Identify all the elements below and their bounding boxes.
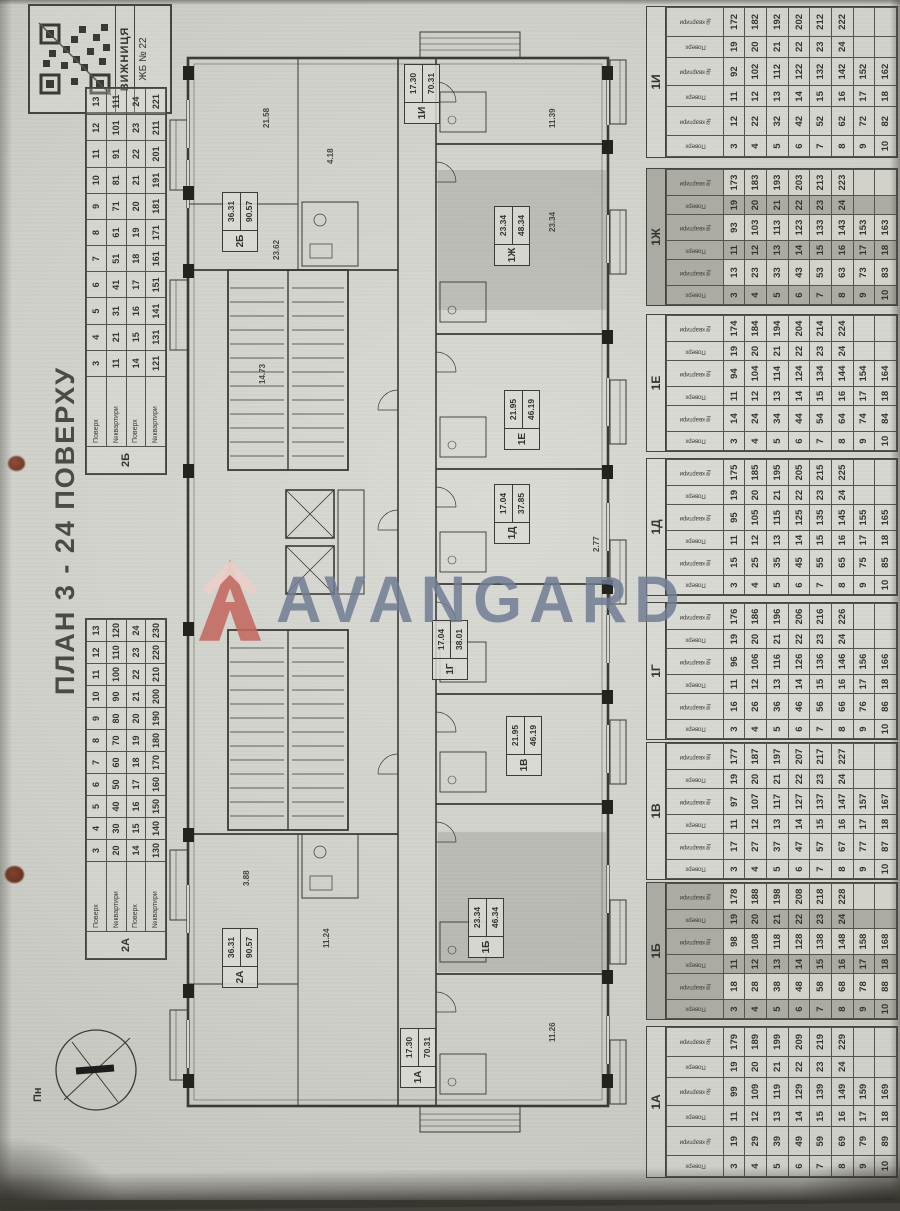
table-row: 4271210720187 [745,744,767,879]
apartment-header: №квартири [146,377,166,447]
unit-id: 1В [507,754,541,775]
table-row: 318119819178 [723,884,745,1019]
apartment-number-cell: 153 [853,215,875,241]
apartment-number-cell [853,604,875,630]
apartment-type-label: 1Б [647,883,666,1019]
apartment-number-cell: 202 [788,8,810,37]
apartment-number-cell: 24 [745,406,767,432]
unit-living-area: 23.34 [469,899,487,936]
apartment-number-cell: 95 [723,505,745,531]
apartment-number-cell: 201 [146,141,166,167]
apartment-number-cell: 203 [788,170,810,196]
apartment-number-cell: 28 [745,974,767,1000]
table-row: 5371311721197 [767,744,789,879]
apartment-number-cell: 148 [832,929,854,955]
floor-number-cell: 24 [832,342,854,361]
floor-number-cell: 9 [853,860,875,879]
apartment-number-cell: 161 [146,246,166,272]
floor-number-cell: 22 [788,630,810,649]
table-row: 97717157 [853,744,875,879]
apartment-number-cell: 102 [745,57,767,86]
stair-core [228,270,348,470]
floor-number-cell: 11 [723,815,745,834]
apartment-number-cell: 17 [723,834,745,860]
apartment-number-cell: 54 [810,406,832,432]
floor-number-cell: 4 [87,818,107,840]
floor-number-cell: 23 [810,1056,832,1077]
apartment-header: №квартири [667,1077,724,1106]
floor-number-cell: 6 [788,432,810,451]
unit-area-label: 1Д17.0437.85 [494,484,530,544]
table-row: 4221210220182 [745,8,767,157]
apartment-number-cell: 103 [745,215,767,241]
floor-number-cell: 12 [745,531,767,550]
dimension-label: 2.77 [592,536,601,552]
floor-number-cell: 16 [126,796,146,818]
apartment-number-cell: 19 [723,1127,745,1156]
apartment-number-cell: 15 [723,550,745,576]
apartment-number-cell: 100 [106,664,126,686]
apartment-number-cell: 175 [723,460,745,486]
apartment-number-cell: 154 [853,361,875,387]
apartment-number-cell: 20 [106,840,126,862]
floor-number-cell: 21 [767,342,789,361]
apartment-number-cell: 197 [767,744,789,770]
apartment-number-cell: 170 [146,752,166,774]
floor-number-cell: 5 [767,286,789,305]
unit-id: 1Д [495,522,529,543]
apartment-number-cell: 137 [810,789,832,815]
floor-header: Поверх [667,1106,724,1127]
floor-number-cell: 17 [853,815,875,834]
floor-number-cell: 23 [810,36,832,57]
apartment-number-cell: 227 [832,744,854,770]
apartment-number-cell: 30 [106,818,126,840]
apartment-number-cell: 101 [106,115,126,141]
floor-number-cell: 6 [788,720,810,739]
floor-number-cell: 17 [853,86,875,107]
table-row: 313119319173 [723,170,745,305]
table-row: 6481412822208 [788,884,810,1019]
floor-number-cell: 14 [788,815,810,834]
floor-number-cell: 5 [767,136,789,157]
dimension-label: 11.26 [548,1022,557,1042]
floor-number-cell: 21 [767,910,789,929]
floor-number-cell: 11 [723,531,745,550]
unit-areas: 36.3190.57 [223,929,257,966]
floor-number-cell: 19 [723,630,745,649]
apartment-number-cell: 192 [767,8,789,37]
floor-number-cell: 20 [745,630,767,649]
apartment-number-cell: 114 [767,361,789,387]
compass-icon [50,1021,145,1116]
floor-number-cell: 4 [745,432,767,451]
floor-number-cell: 23 [810,630,832,649]
table-row: 5351311521195 [767,460,789,595]
apartment-number-cell: 218 [810,884,832,910]
apartment-number-cell: 106 [745,649,767,675]
floor-number-cell: 11 [723,241,745,260]
floor-number-cell: 24 [832,486,854,505]
dimension-label: 11.39 [548,108,557,128]
apartment-number-cell: 155 [853,505,875,531]
apartment-number-cell: 223 [832,170,854,196]
apartment-number-cell: 68 [832,974,854,1000]
floor-number-cell: 23 [810,910,832,929]
unit-id: 2Б [223,230,257,251]
apartment-number-cell: 50 [106,774,126,796]
floor-number-cell: 13 [767,387,789,406]
apartment-number-cell: 73 [853,260,875,286]
unit-living-area: 21.95 [505,391,523,428]
apartment-number-cell: 198 [767,884,789,910]
floor-header: Поверх [667,770,724,789]
apartment-number-cell: 91 [106,141,126,167]
apartment-number-cell: 105 [745,505,767,531]
floor-number-cell: 20 [745,910,767,929]
floor-number-cell: 22 [788,1056,810,1077]
floor-number-cell: 9 [853,432,875,451]
floor-number-cell: 8 [87,730,107,752]
table-row: 97417154 [853,316,875,451]
table-row: 2АПоверх345678910111213 [87,620,107,959]
unit-id: 1А [401,1066,435,1087]
floor-number-cell: 9 [87,708,107,730]
floor-number-cell: 12 [745,955,767,974]
floor-number-cell: 23 [810,196,832,215]
floor-number-cell: 15 [810,955,832,974]
floor-number-cell: 22 [788,36,810,57]
floor-number-cell: 20 [126,193,146,219]
apartment-number-cell: 145 [832,505,854,531]
apartment-number-cell: 67 [832,834,854,860]
floor-number-cell: 8 [832,720,854,739]
table-header-row: Поверх№квартириПоверх№квартириПоверх№ква… [667,1028,724,1177]
floor-number-cell: 7 [810,136,832,157]
floor-number-cell: 14 [788,86,810,107]
floor-header: Поверх [667,910,724,929]
unit-2b-interior [188,58,358,270]
floor-number-cell: 6 [788,286,810,305]
dimension-label: 11.24 [322,928,331,948]
apartment-number-cell: 142 [832,57,854,86]
apartment-number-cell: 12 [723,107,745,136]
floor-header: Поверх [667,286,724,305]
apartment-header: №квартири [146,862,166,932]
floor-number-cell: 20 [745,342,767,361]
unit-area-label: 2А36.3190.57 [222,928,258,988]
floor-number-cell: 22 [788,910,810,929]
apartment-number-cell: 209 [788,1028,810,1057]
apartment-number-cell: 157 [853,789,875,815]
table-row: 6421412222202 [788,8,810,157]
apartment-number-cell: 134 [810,361,832,387]
floor-number-cell: 15 [810,675,832,694]
unit-id: 1Б [469,936,503,957]
table-header-row: Поверх№квартириПоверх№квартириПоверх№ква… [667,8,724,157]
apartment-number-cell: 35 [767,550,789,576]
floor-number-cell: 8 [832,432,854,451]
apartment-number-cell: 174 [723,316,745,342]
apartment-number-cell: 193 [767,170,789,196]
floor-number-cell: 16 [126,298,146,324]
floor-apartment-table: Поверх№квартириПоверх№квартириПоверх№ква… [666,459,897,595]
floor-number-cell: 21 [767,630,789,649]
dimension-label: 14.73 [258,364,267,384]
floor-number-cell: 9 [87,193,107,219]
stair-core [228,630,348,830]
floor-number-cell: 3 [723,1000,745,1019]
floor-header: Поверх [126,377,146,447]
floor-number-cell: 17 [853,675,875,694]
floor-number-cell: 11 [723,675,745,694]
floor-number-cell: 17 [126,774,146,796]
apartment-header: №квартири [667,460,724,486]
apartment-number-cell: 183 [745,170,767,196]
table-row: 4231210320183 [745,170,767,305]
floor-apartment-table: Поверх№квартириПоверх№квартириПоверх№ква… [666,315,897,451]
apartment-number-cell: 151 [146,272,166,298]
table-row: 7541513423214 [810,316,832,451]
floor-number-cell: 10 [87,167,107,193]
apartment-number-cell: 43 [788,260,810,286]
floor-number-cell: 21 [767,770,789,789]
floor-number-cell: 18 [126,246,146,272]
unit-living-area: 17.30 [401,1029,419,1066]
apartment-number-cell: 205 [788,460,810,486]
apartment-number-cell: 116 [767,649,789,675]
unit-areas: 21.9546.19 [505,391,539,428]
unit-total-area: 90.57 [241,193,258,230]
unit-total-area: 90.57 [241,929,258,966]
apartment-number-cell: 225 [832,460,854,486]
floor-number-cell: 9 [853,1000,875,1019]
floor-number-cell: 8 [832,286,854,305]
apartment-number-cell: 44 [788,406,810,432]
apartment-number-cell: 200 [146,686,166,708]
table-row: 6471412722207 [788,744,810,879]
apartment-number-cell: 206 [788,604,810,630]
apartment-number-cell: 182 [745,8,767,37]
floor-number-cell: 15 [810,1106,832,1127]
floor-number-cell: 23 [126,642,146,664]
floor-number-cell: 9 [853,286,875,305]
table-row: 319119919179 [723,1028,745,1177]
floor-number-cell [853,36,875,57]
apartment-header: №квартири [106,862,126,932]
apartment-number-cell: 139 [810,1077,832,1106]
apartment-number-cell: 53 [810,260,832,286]
floor-number-cell: 15 [810,86,832,107]
floor-number-cell: 16 [832,86,854,107]
unit-areas: 23.3448.34 [495,207,529,244]
table-row: 6431412322203 [788,170,810,305]
apartment-number-cell: 107 [745,789,767,815]
floor-number-cell: 11 [723,387,745,406]
unit-area-label: 1В21.9546.19 [506,716,542,776]
unit-total-area: 46.19 [523,391,540,428]
apartment-number-cell: 70 [106,730,126,752]
unit-areas: 21.9546.19 [507,717,541,754]
apartment-type-label: 1Ж [647,169,666,305]
apartment-number-cell: 143 [832,215,854,241]
floor-number-cell: 8 [832,1000,854,1019]
floor-number-cell: 7 [87,246,107,272]
paper-edge-shadow [0,0,900,5]
floor-number-cell: 11 [87,664,107,686]
floor-header: Поверх [87,862,107,932]
watermark-text: AVANGARD [276,562,687,638]
unit-id: 2А [223,966,257,987]
floor-number-cell: 11 [723,1106,745,1127]
unit-living-area: 21.95 [507,717,525,754]
apartment-number-cell: 118 [767,929,789,955]
apartment-number-cell [853,884,875,910]
apartment-type-label: 1Е [647,315,666,451]
floor-number-cell: 17 [126,272,146,298]
unit-area-label: 1И17.3070.31 [404,64,440,124]
floor-number-cell: 16 [832,531,854,550]
table-row: 4251210520185 [745,460,767,595]
apartment-number-cell: 158 [853,929,875,955]
floor-number-cell: 19 [723,196,745,215]
apartment-table-1v: 1ВПоверх№квартириПоверх№квартириПоверх№к… [646,742,898,880]
apartment-number-cell: 72 [853,107,875,136]
floor-number-cell: 13 [87,89,107,115]
floor-apartment-table: Поверх№квартириПоверх№квартириПоверх№ква… [666,743,897,879]
floor-number-cell: 21 [126,167,146,193]
apartment-table-1zh: 1ЖПоверх№квартириПоверх№квартириПоверх№к… [646,168,898,306]
table-row: 315119519175 [723,460,745,595]
floor-number-cell: 4 [745,286,767,305]
unit-area-label: 1Е21.9546.19 [504,390,540,450]
apartment-number-cell: 76 [853,694,875,720]
floor-number-cell: 16 [832,241,854,260]
dimension-label: 3.88 [242,870,251,886]
apartment-number-cell: 176 [723,604,745,630]
floor-number-cell [853,630,875,649]
floor-number-cell: 18 [126,752,146,774]
floor-header: Поверх [126,862,146,932]
apartment-number-cell: 159 [853,1077,875,1106]
apartment-number-cell: 122 [788,57,810,86]
floor-number-cell: 7 [810,720,832,739]
table-row: 4241210420184 [745,316,767,451]
apartment-number-cell: 133 [810,215,832,241]
table-row: 312119219172 [723,8,745,157]
apartment-type-label: 1И [647,7,666,157]
unit-living-area: 17.30 [405,65,423,102]
unit-living-area: 17.04 [495,485,513,522]
unit-total-area: 48.34 [513,207,530,244]
floor-number-cell: 15 [810,387,832,406]
table-row: №квартири1301401501601701801902002102202… [146,620,166,959]
apartment-number-cell: 230 [146,620,166,642]
floor-number-cell: 16 [832,1106,854,1127]
apartment-number-cell: 208 [788,884,810,910]
apartment-number-cell: 186 [745,604,767,630]
floor-number-cell: 12 [745,387,767,406]
floor-number-cell: 14 [788,241,810,260]
floor-number-cell: 20 [745,36,767,57]
apartment-number-cell [853,170,875,196]
floor-number-cell: 16 [832,675,854,694]
apartment-header: №квартири [667,834,724,860]
floor-number-cell: 19 [723,910,745,929]
apartment-number-cell: 34 [767,406,789,432]
apartment-number-cell: 190 [146,708,166,730]
apartment-number-cell [853,744,875,770]
apartment-number-cell: 58 [810,974,832,1000]
apartment-number-cell: 188 [745,884,767,910]
floor-header: Поверх [667,196,724,215]
floor-number-cell: 3 [723,286,745,305]
floor-number-cell: 22 [126,141,146,167]
apartment-header: №квартири [667,789,724,815]
apartment-header: №квартири [667,1028,724,1057]
apartment-number-cell: 41 [106,272,126,298]
floor-apartment-table: Поверх№квартириПоверх№квартириПоверх№ква… [666,169,897,305]
dimension-label: 23.62 [272,240,281,260]
table-row: 7571513723217 [810,744,832,879]
table-row: 6451412522205 [788,460,810,595]
table-row: 5331311321193 [767,170,789,305]
floor-number-cell: 15 [810,241,832,260]
table-row: 7521513223212 [810,8,832,157]
floor-number-cell: 14 [788,955,810,974]
floor-number-cell: 19 [126,730,146,752]
apartment-number-cell: 187 [745,744,767,770]
apartment-number-cell: 120 [106,620,126,642]
unit-areas: 23.3446.34 [469,899,503,936]
avangard-logo-icon [196,552,264,648]
floor-apartment-table: Поверх№квартириПоверх№квартириПоверх№ква… [666,883,897,1019]
floor-number-cell: 14 [126,350,146,376]
apartment-number-cell: 81 [106,167,126,193]
apartment-table-2b: 2БПоверх345678910111213№квартири11213141… [85,87,167,475]
table-row: 7531513323213 [810,170,832,305]
unit-total-area: 46.19 [525,717,542,754]
unit-areas: 17.0437.85 [495,485,529,522]
floor-number-cell: 5 [767,1000,789,1019]
floor-number-cell: 4 [87,324,107,350]
unit-area-label: 1Ж23.3448.34 [494,206,530,266]
floor-header: Поверх [667,432,724,451]
floor-header: Поверх [667,36,724,57]
unit-living-area: 36.31 [223,193,241,230]
floor-number-cell: 8 [832,576,854,595]
floor-number-cell: 4 [745,1000,767,1019]
apartment-number-cell: 212 [810,8,832,37]
apartment-header: №квартири [667,57,724,86]
unit-total-area: 70.31 [419,1029,436,1066]
floor-number-cell: 13 [767,531,789,550]
apartment-number-cell: 11 [106,350,126,376]
floor-number-cell: 14 [788,387,810,406]
floor-number-cell: 23 [126,115,146,141]
apartment-header: №квартири [667,361,724,387]
apartment-number-cell: 37 [767,834,789,860]
table-row: Поверх1415161718192021222324 [126,620,146,959]
floor-number-cell: 5 [87,796,107,818]
floor-header: Поверх [87,377,107,447]
apartment-number-cell: 36 [767,694,789,720]
apartment-number-cell: 61 [106,219,126,245]
unit-areas: 36.3190.57 [223,193,257,230]
apartment-number-cell: 196 [767,604,789,630]
apartment-number-cell: 172 [723,8,745,37]
paper-edge-shadow [0,0,12,1200]
